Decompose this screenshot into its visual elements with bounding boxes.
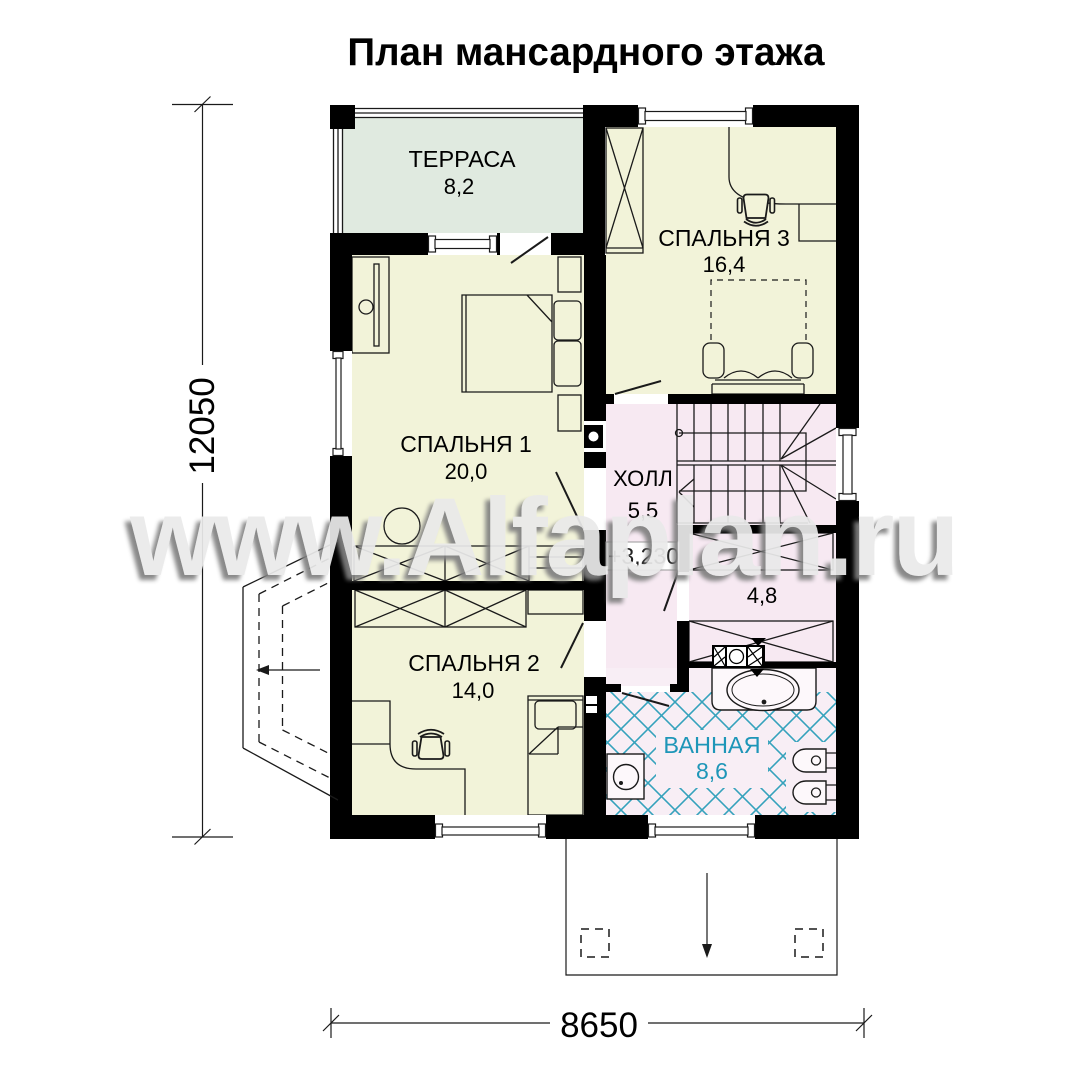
svg-text:СПАЛЬНЯ 2: СПАЛЬНЯ 2	[408, 650, 540, 676]
svg-text:16,4: 16,4	[703, 252, 746, 277]
svg-text:14,0: 14,0	[452, 678, 495, 703]
svg-text:План мансардного этажа: План мансардного этажа	[347, 31, 825, 74]
svg-text:8,6: 8,6	[696, 758, 728, 784]
svg-text:СПАЛЬНЯ 3: СПАЛЬНЯ 3	[658, 225, 790, 251]
svg-text:ВАННАЯ: ВАННАЯ	[663, 732, 760, 758]
svg-text:ТЕРРАСА: ТЕРРАСА	[408, 146, 515, 172]
svg-text:СПАЛЬНЯ 1: СПАЛЬНЯ 1	[400, 431, 532, 457]
svg-text:12050: 12050	[183, 377, 222, 474]
svg-text:8,2: 8,2	[444, 174, 475, 199]
svg-text:www.Alfaplan.ru: www.Alfaplan.ru	[129, 476, 958, 599]
svg-text:8650: 8650	[560, 1006, 638, 1045]
